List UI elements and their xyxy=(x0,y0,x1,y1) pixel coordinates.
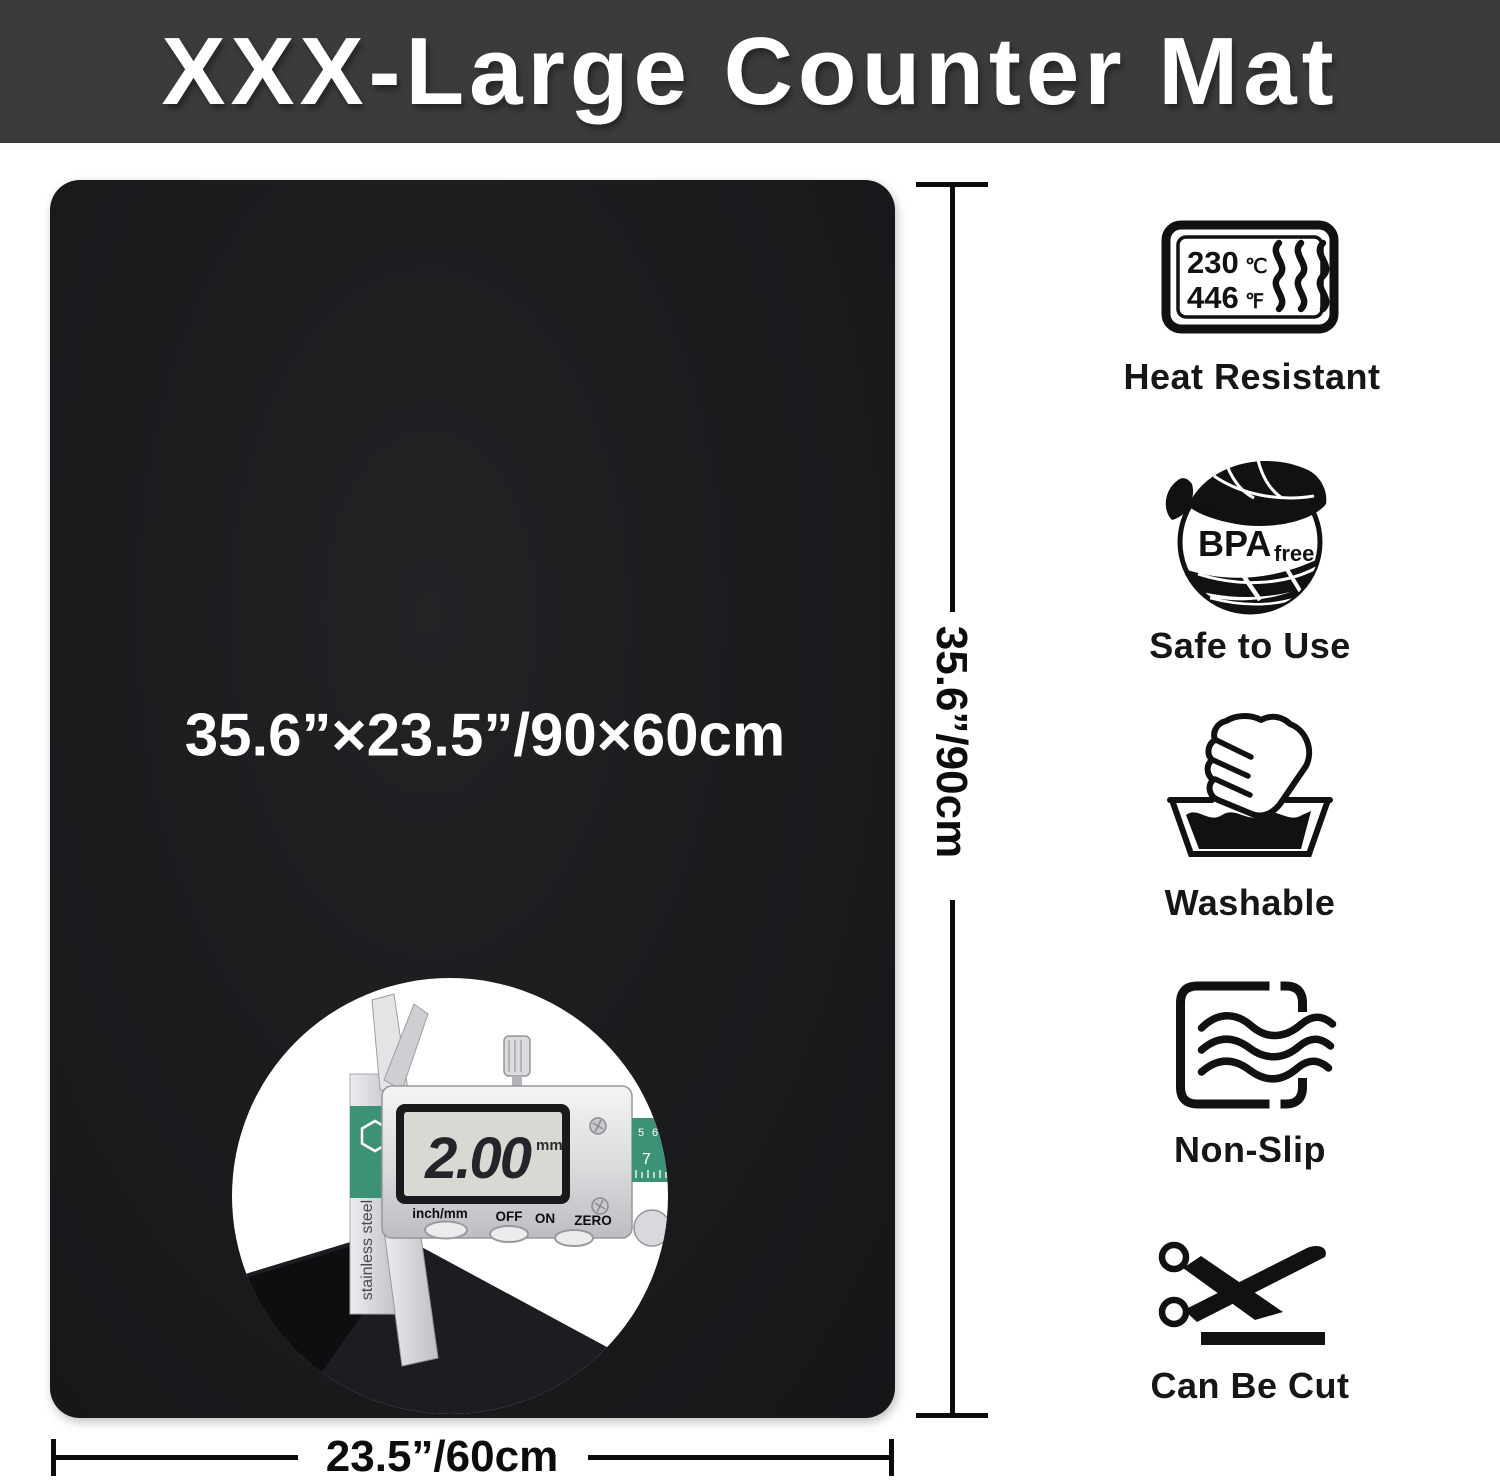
caliper-button-inchmm: inch/mm xyxy=(412,1206,468,1221)
caliper-display-unit: mm xyxy=(536,1137,563,1154)
mat-size-label: 35.6”×23.5”/90×60cm xyxy=(185,701,786,770)
feature-label-washable: Washable xyxy=(1165,882,1336,924)
washable-icon xyxy=(1164,712,1336,869)
can-be-cut-icon xyxy=(1157,1240,1339,1357)
counter-mat: 35.6”×23.5”/90×60cm 0.08”/2mm xyxy=(50,180,895,1418)
caliper-roller xyxy=(634,1210,668,1246)
feature-label-heat-resistant: Heat Resistant xyxy=(1123,356,1380,398)
width-dimension-label: 23.5”/60cm xyxy=(326,1432,558,1480)
thickness-inset-photo: stainless steel 2.00 mm xyxy=(232,978,668,1414)
svg-text:℉: ℉ xyxy=(1245,291,1264,313)
caliper-side-text: stainless steel xyxy=(359,1200,376,1301)
svg-text:7: 7 xyxy=(642,1151,651,1168)
svg-text:free: free xyxy=(1274,541,1314,566)
caliper-thumb-screw xyxy=(504,1036,530,1076)
mat-cut-bar xyxy=(1201,1332,1325,1345)
svg-text:℃: ℃ xyxy=(1245,256,1267,278)
svg-text:230: 230 xyxy=(1187,245,1239,280)
bpa-free-icon: BPA free xyxy=(1162,448,1338,625)
caliper-button-off: OFF xyxy=(496,1209,523,1224)
svg-text:BPA: BPA xyxy=(1198,523,1271,564)
non-slip-icon xyxy=(1174,980,1339,1120)
heat-resistant-icon: 230 ℃ 446 ℉ xyxy=(1161,220,1339,339)
svg-text:6: 6 xyxy=(652,1127,658,1139)
slip-waves xyxy=(1202,1016,1333,1079)
caliper-button-zero: ZERO xyxy=(574,1213,612,1228)
caliper-display-value: 2.00 xyxy=(424,1126,532,1191)
caliper-button-on: ON xyxy=(535,1211,555,1226)
feature-label-can-be-cut: Can Be Cut xyxy=(1150,1365,1349,1407)
svg-text:5: 5 xyxy=(638,1127,644,1139)
caliper-illustration: stainless steel 2.00 mm xyxy=(232,978,668,1414)
feature-label-safe-to-use: Safe to Use xyxy=(1149,625,1351,667)
product-image: XXX-Large Counter Mat 35.6”×23.5”/90×60c… xyxy=(0,0,1500,1480)
title-banner: XXX-Large Counter Mat xyxy=(0,0,1500,143)
height-dimension-label: 35.6”/90cm xyxy=(926,626,976,858)
feature-label-non-slip: Non-Slip xyxy=(1174,1129,1326,1171)
svg-text:446: 446 xyxy=(1187,280,1239,315)
page-title: XXX-Large Counter Mat xyxy=(161,17,1338,127)
